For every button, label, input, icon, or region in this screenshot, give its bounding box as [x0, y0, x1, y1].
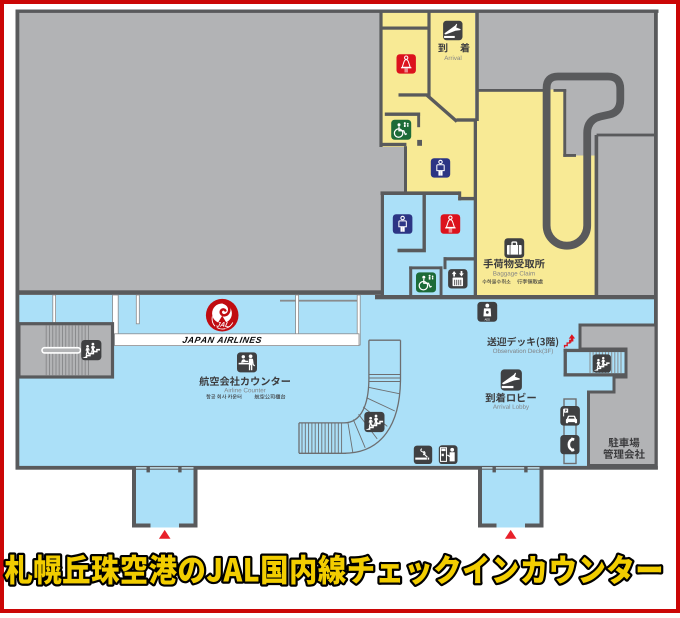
svg-text:AED: AED	[484, 317, 490, 321]
